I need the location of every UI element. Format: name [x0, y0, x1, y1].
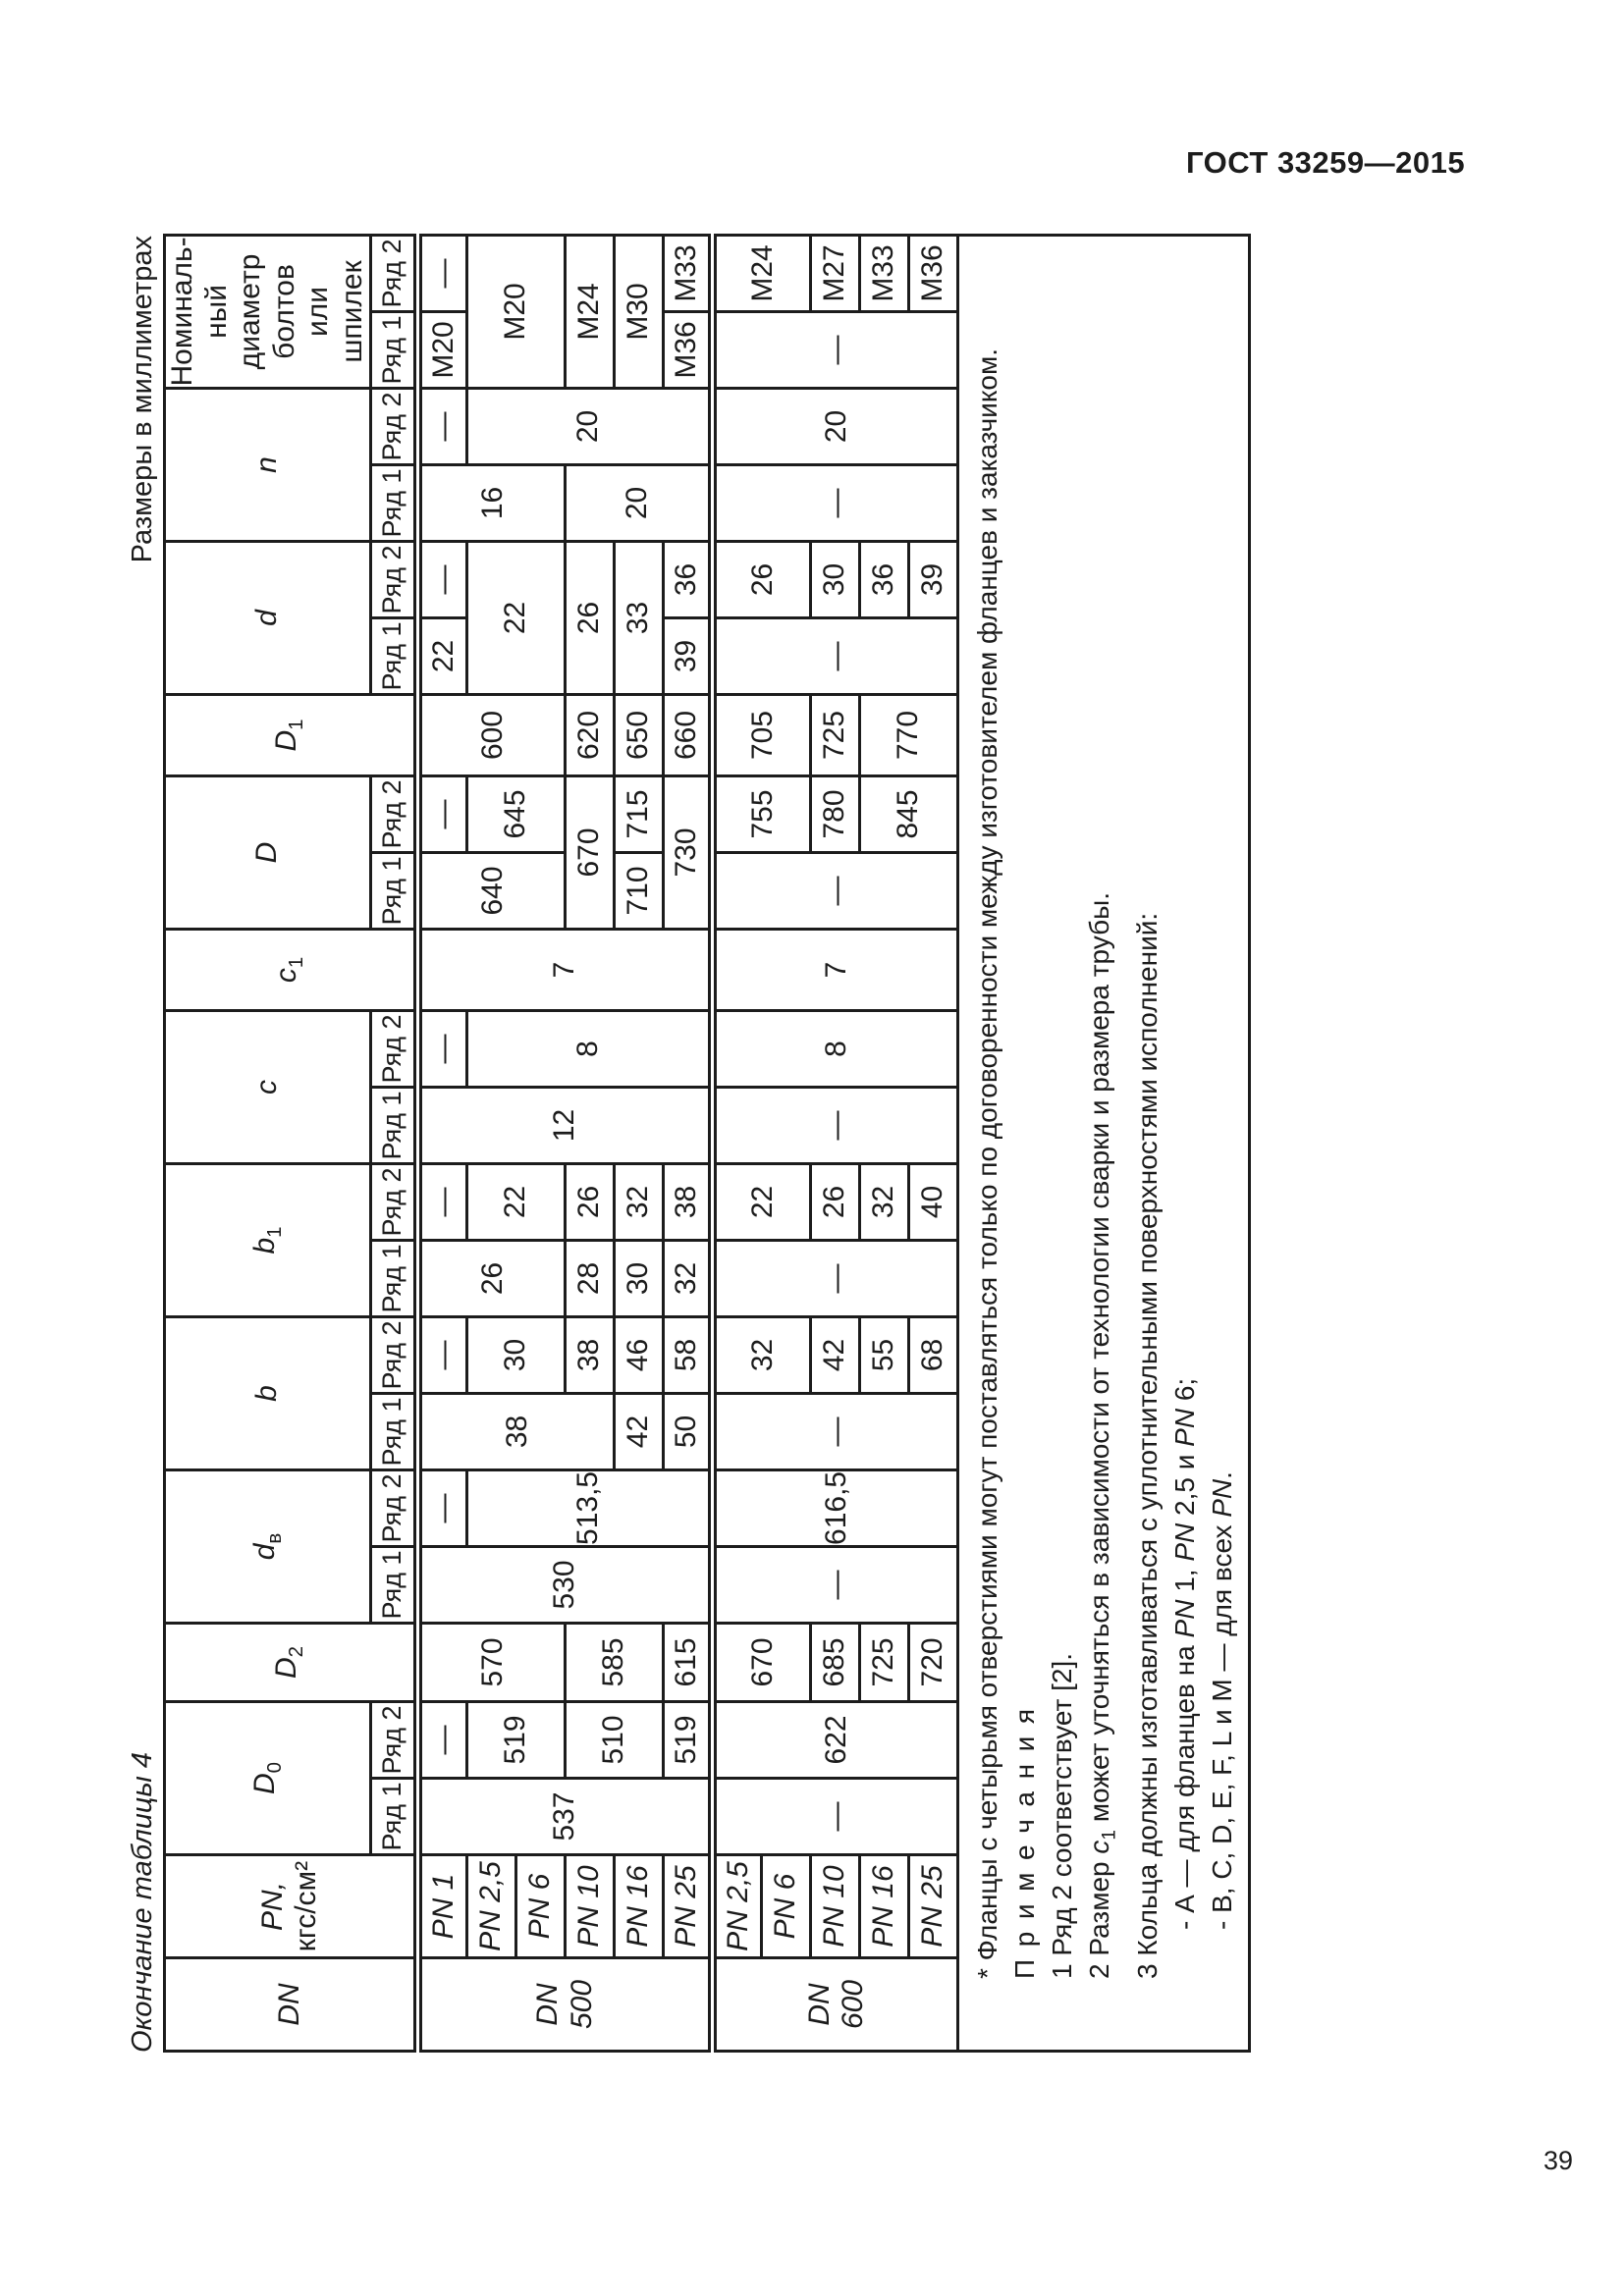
table-footer: * Фланцы с четырьмя отверстиями могут по… [958, 235, 1250, 2051]
value-cell: — [713, 1779, 958, 1855]
note-line: * Фланцы с четырьмя отверстиями могут по… [969, 237, 1006, 1979]
value-cell: — [418, 1316, 467, 1393]
value-cell: М30 [615, 235, 664, 388]
value-cell: 710 [615, 852, 664, 929]
value-cell: — [713, 1393, 958, 1469]
row-label-cell: DN600 [713, 1958, 958, 2052]
value-cell: 36 [664, 541, 713, 617]
col-header-b1: b1 [165, 1163, 371, 1316]
value-cell: 20 [713, 388, 958, 464]
value-cell: 530 [418, 1546, 713, 1623]
value-cell: — [418, 235, 467, 311]
value-cell: 519 [664, 1701, 713, 1778]
value-cell: 22 [418, 617, 467, 694]
value-cell: 670 [713, 1623, 811, 1701]
row-label-cell: PN 16 [860, 1855, 909, 1958]
col-header-dv: dв [165, 1469, 371, 1623]
value-cell: — [713, 617, 958, 694]
col-header-bolt-diameter: Номиналь- ный диаметр болтов или шпилек [165, 235, 371, 388]
subheader-ryad1: Ряд 1 [371, 852, 418, 929]
col-header-pn: PN, кгс/см² [165, 1855, 418, 1958]
col-header-c: c [165, 1010, 371, 1163]
value-cell: 26 [713, 541, 811, 617]
value-cell: — [713, 1240, 958, 1316]
note-line: - В, C, D, E, F, L и М — для всех PN. [1204, 237, 1241, 1930]
subheader-ryad1: Ряд 1 [371, 617, 418, 694]
value-cell: 615 [664, 1623, 713, 1701]
value-cell: 20 [566, 464, 713, 541]
subheader-ryad1: Ряд 1 [371, 1546, 418, 1623]
table-row: DN600PN 2,5—622670—616,5—32—22—87—755705… [713, 235, 762, 2051]
value-cell: 705 [713, 694, 811, 775]
value-cell: — [418, 1701, 467, 1778]
value-cell: — [713, 852, 958, 929]
value-cell: М24 [566, 235, 615, 388]
value-cell: 720 [909, 1623, 958, 1701]
value-cell: 640 [418, 852, 566, 929]
document-standard-number: ГОСТ 33259—2015 [1186, 145, 1465, 181]
value-cell: 36 [860, 541, 909, 617]
row-label-cell: PN 2,5 [467, 1855, 516, 1958]
subheader-ryad2: Ряд 2 [371, 541, 418, 617]
row-label-cell: PN 10 [566, 1855, 615, 1958]
value-cell: М27 [811, 235, 860, 311]
value-cell: 616,5 [713, 1469, 958, 1546]
value-cell: 715 [615, 775, 664, 852]
value-cell: М20 [467, 235, 566, 388]
value-cell: — [713, 311, 958, 388]
value-cell: 39 [909, 541, 958, 617]
note-line: 3 Кольца должны изготавливаться с уплотн… [1129, 237, 1166, 1979]
value-cell: 58 [664, 1316, 713, 1393]
page: { "page": { "header": "ГОСТ 33259—2015",… [0, 0, 1624, 2296]
value-cell: 42 [615, 1393, 664, 1469]
value-cell: 38 [418, 1393, 615, 1469]
value-cell: 46 [615, 1316, 664, 1393]
col-header-n: n [165, 388, 371, 541]
value-cell: 725 [860, 1623, 909, 1701]
value-cell: 513,5 [467, 1469, 713, 1546]
value-cell: 730 [664, 775, 713, 929]
value-cell: 8 [467, 1010, 713, 1087]
flange-dimensions-table: DN PN, кгс/см² D0 D2 dв b b1 c c1 D D1 d… [163, 234, 1251, 2053]
value-cell: 26 [566, 541, 615, 694]
value-cell: 68 [909, 1316, 958, 1393]
value-cell: 38 [566, 1316, 615, 1393]
value-cell: 780 [811, 775, 860, 852]
value-cell: 22 [467, 541, 566, 694]
table-row: DN500PN 1537—570530—38—26—12—7640—60022—… [418, 235, 467, 2051]
value-cell: 12 [418, 1087, 713, 1163]
value-cell: 770 [860, 694, 958, 775]
value-cell: — [713, 1087, 958, 1163]
value-cell: М33 [860, 235, 909, 311]
value-cell: — [418, 541, 467, 617]
row-label-cell: DN500 [418, 1958, 713, 2052]
value-cell: 22 [713, 1163, 811, 1240]
value-cell: 22 [467, 1163, 566, 1240]
value-cell: 30 [811, 541, 860, 617]
value-cell: 26 [566, 1163, 615, 1240]
col-header-d: d [165, 541, 371, 694]
value-cell: 622 [713, 1701, 958, 1778]
value-cell: 26 [811, 1163, 860, 1240]
value-cell: — [418, 775, 467, 852]
subheader-ryad1: Ряд 1 [371, 1393, 418, 1469]
value-cell: 7 [418, 929, 713, 1010]
page-number: 39 [1543, 2146, 1573, 2176]
subheader-ryad1: Ряд 1 [371, 1779, 418, 1855]
value-cell: 32 [860, 1163, 909, 1240]
value-cell: — [713, 464, 958, 541]
note-line: 2 Размер c1 может уточняться в зависимос… [1081, 237, 1129, 1979]
value-cell: 42 [811, 1316, 860, 1393]
value-cell: М36 [909, 235, 958, 311]
value-cell: 519 [467, 1701, 566, 1778]
subheader-ryad2: Ряд 2 [371, 1163, 418, 1240]
subheader-ryad1: Ряд 1 [371, 1087, 418, 1163]
value-cell: 50 [664, 1393, 713, 1469]
subheader-ryad2: Ряд 2 [371, 775, 418, 852]
col-header-d2: D2 [165, 1623, 418, 1701]
subheader-ryad2: Ряд 2 [371, 1469, 418, 1546]
value-cell: 16 [418, 464, 566, 541]
value-cell: 30 [615, 1240, 664, 1316]
row-label-cell: PN 16 [615, 1855, 664, 1958]
value-cell: — [418, 1163, 467, 1240]
value-cell: 537 [418, 1779, 713, 1855]
note-line: 1 Ряд 2 соответствует [2]. [1044, 237, 1081, 1979]
value-cell: 40 [909, 1163, 958, 1240]
note-line: - А — для фланцев на PN 1, PN 2,5 и PN 6… [1166, 237, 1204, 1930]
value-cell: 7 [713, 929, 958, 1010]
subheader-ryad2: Ряд 2 [371, 388, 418, 464]
value-cell: 845 [860, 775, 958, 852]
row-label-cell: PN 6 [762, 1855, 811, 1958]
rotated-table-block: Окончание таблицы 4 Размеры в миллиметра… [118, 182, 1218, 2066]
value-cell: 33 [615, 541, 664, 694]
value-cell: М20 [418, 311, 467, 388]
value-cell: — [418, 1469, 467, 1546]
col-header-d0: D0 [165, 1701, 371, 1854]
value-cell: 645 [467, 775, 566, 852]
col-header-D1: D1 [165, 694, 418, 775]
value-cell: 26 [418, 1240, 566, 1316]
value-cell: 660 [664, 694, 713, 775]
value-cell: 38 [664, 1163, 713, 1240]
row-label-cell: PN 25 [909, 1855, 958, 1958]
value-cell: 725 [811, 694, 860, 775]
row-label-cell: PN 25 [664, 1855, 713, 1958]
subheader-ryad2: Ряд 2 [371, 1010, 418, 1087]
subheader-ryad1: Ряд 1 [371, 311, 418, 388]
col-header-dn: DN [165, 1958, 418, 2052]
value-cell: 585 [566, 1623, 664, 1701]
value-cell: 55 [860, 1316, 909, 1393]
value-cell: 510 [566, 1701, 664, 1778]
row-label-cell: PN 6 [516, 1855, 566, 1958]
value-cell: 8 [713, 1010, 958, 1087]
row-label-cell: PN 10 [811, 1855, 860, 1958]
value-cell: 650 [615, 694, 664, 775]
value-cell: М33 [664, 235, 713, 311]
table-body: DN500PN 1537—570530—38—26—12—7640—60022—… [418, 235, 958, 2051]
notes-cell: * Фланцы с четырьмя отверстиями могут по… [958, 235, 1250, 2051]
table-header: DN PN, кгс/см² D0 D2 dв b b1 c c1 D D1 d… [165, 235, 418, 2051]
value-cell: 670 [566, 775, 615, 929]
value-cell: 32 [664, 1240, 713, 1316]
value-cell: М24 [713, 235, 811, 311]
header-row-groups: DN PN, кгс/см² D0 D2 dв b b1 c c1 D D1 d… [165, 235, 371, 2051]
notes-row: * Фланцы с четырьмя отверстиями могут по… [958, 235, 1250, 2051]
value-cell: — [418, 388, 467, 464]
table-captions: Окончание таблицы 4 Размеры в миллиметра… [118, 236, 163, 2053]
value-cell: 32 [615, 1163, 664, 1240]
value-cell: 39 [664, 617, 713, 694]
table-continuation-caption: Окончание таблицы 4 [127, 1752, 159, 2053]
value-cell: 32 [713, 1316, 811, 1393]
value-cell: 685 [811, 1623, 860, 1701]
units-caption: Размеры в миллиметрах [127, 236, 159, 562]
value-cell: 570 [418, 1623, 566, 1701]
col-header-c1: c1 [165, 929, 418, 1010]
value-cell: 30 [467, 1316, 566, 1393]
subheader-ryad1: Ряд 1 [371, 1240, 418, 1316]
value-cell: М36 [664, 311, 713, 388]
subheader-ryad2: Ряд 2 [371, 1701, 418, 1778]
value-cell: — [713, 1546, 958, 1623]
col-header-b: b [165, 1316, 371, 1469]
header-row-ryad: Ряд 1 Ряд 2 Ряд 1 Ряд 2 Ряд 1 Ряд 2 Ряд … [371, 235, 418, 2051]
value-cell: 600 [418, 694, 566, 775]
subheader-ryad1: Ряд 1 [371, 464, 418, 541]
value-cell: 28 [566, 1240, 615, 1316]
note-line: Примечания [1006, 237, 1044, 1979]
value-cell: 620 [566, 694, 615, 775]
value-cell: 755 [713, 775, 811, 852]
subheader-ryad2: Ряд 2 [371, 235, 418, 311]
row-label-cell: PN 1 [418, 1855, 467, 1958]
value-cell: — [418, 1010, 467, 1087]
col-header-D: D [165, 775, 371, 929]
subheader-ryad2: Ряд 2 [371, 1316, 418, 1393]
row-label-cell: PN 2,5 [713, 1855, 762, 1958]
value-cell: 20 [467, 388, 713, 464]
